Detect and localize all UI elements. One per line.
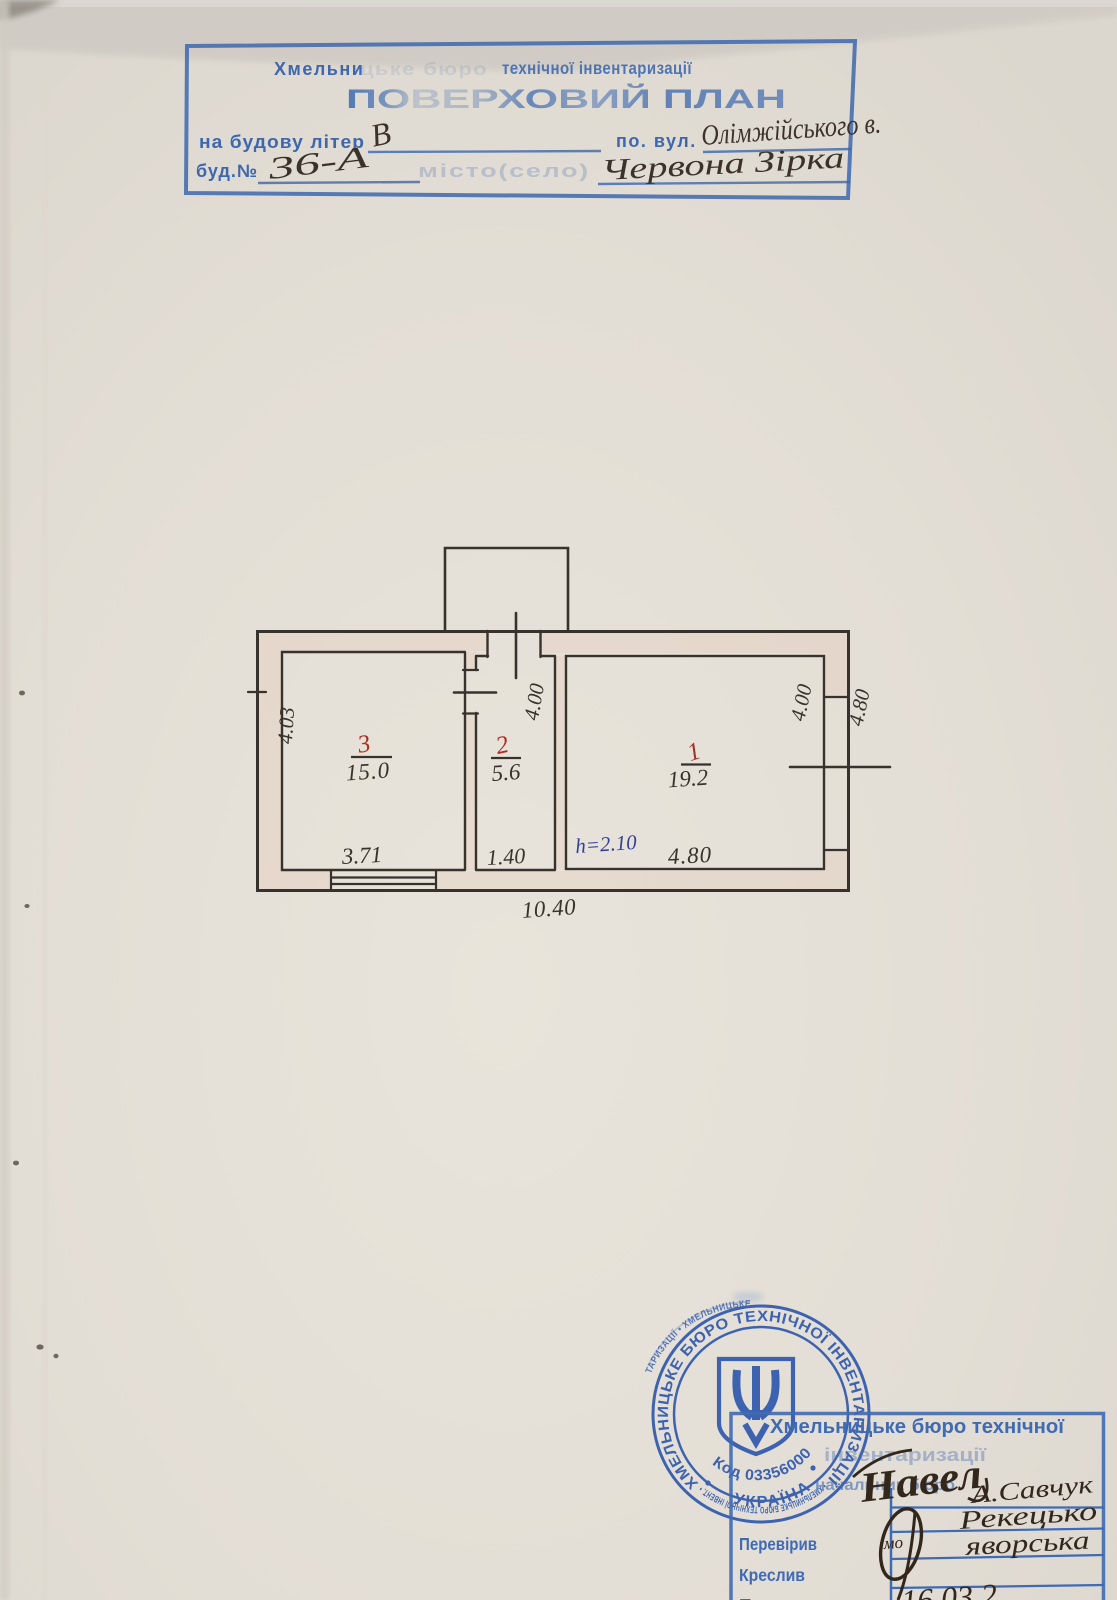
- svg-text:5.6: 5.6: [491, 759, 522, 786]
- svg-text:Хмельницьке бюро технічної: Хмельницьке бюро технічної: [770, 1416, 1064, 1438]
- svg-text:по. вул.: по. вул.: [616, 131, 697, 151]
- svg-text:1.40: 1.40: [486, 843, 526, 870]
- svg-text:3.71: 3.71: [340, 842, 383, 869]
- svg-text:10.40: 10.40: [521, 894, 577, 923]
- svg-text:h=2.10: h=2.10: [574, 830, 637, 858]
- svg-text:4.80: 4.80: [667, 842, 712, 869]
- svg-text:Креслив: Креслив: [739, 1565, 805, 1585]
- svg-text:15.0: 15.0: [345, 757, 391, 785]
- svg-text:Перевірив: Перевірив: [739, 1534, 817, 1554]
- svg-text:місто(село): місто(село): [418, 161, 590, 181]
- svg-text:ПОВЕРХОВИЙ ПЛАН: ПОВЕРХОВИЙ ПЛАН: [346, 84, 786, 114]
- svg-text:буд.№: буд.№: [196, 161, 258, 181]
- svg-text:технічної інвентаризації: технічної інвентаризації: [502, 58, 692, 78]
- svg-text:Погодив: Погодив: [739, 1595, 816, 1600]
- svg-text:4.03: 4.03: [273, 706, 300, 744]
- svg-text:цьке бюро: цьке бюро: [360, 59, 488, 79]
- svg-text:19.2: 19.2: [667, 765, 709, 793]
- svg-text:Хмельни: Хмельни: [274, 59, 364, 79]
- svg-text:мо: мо: [882, 1533, 904, 1553]
